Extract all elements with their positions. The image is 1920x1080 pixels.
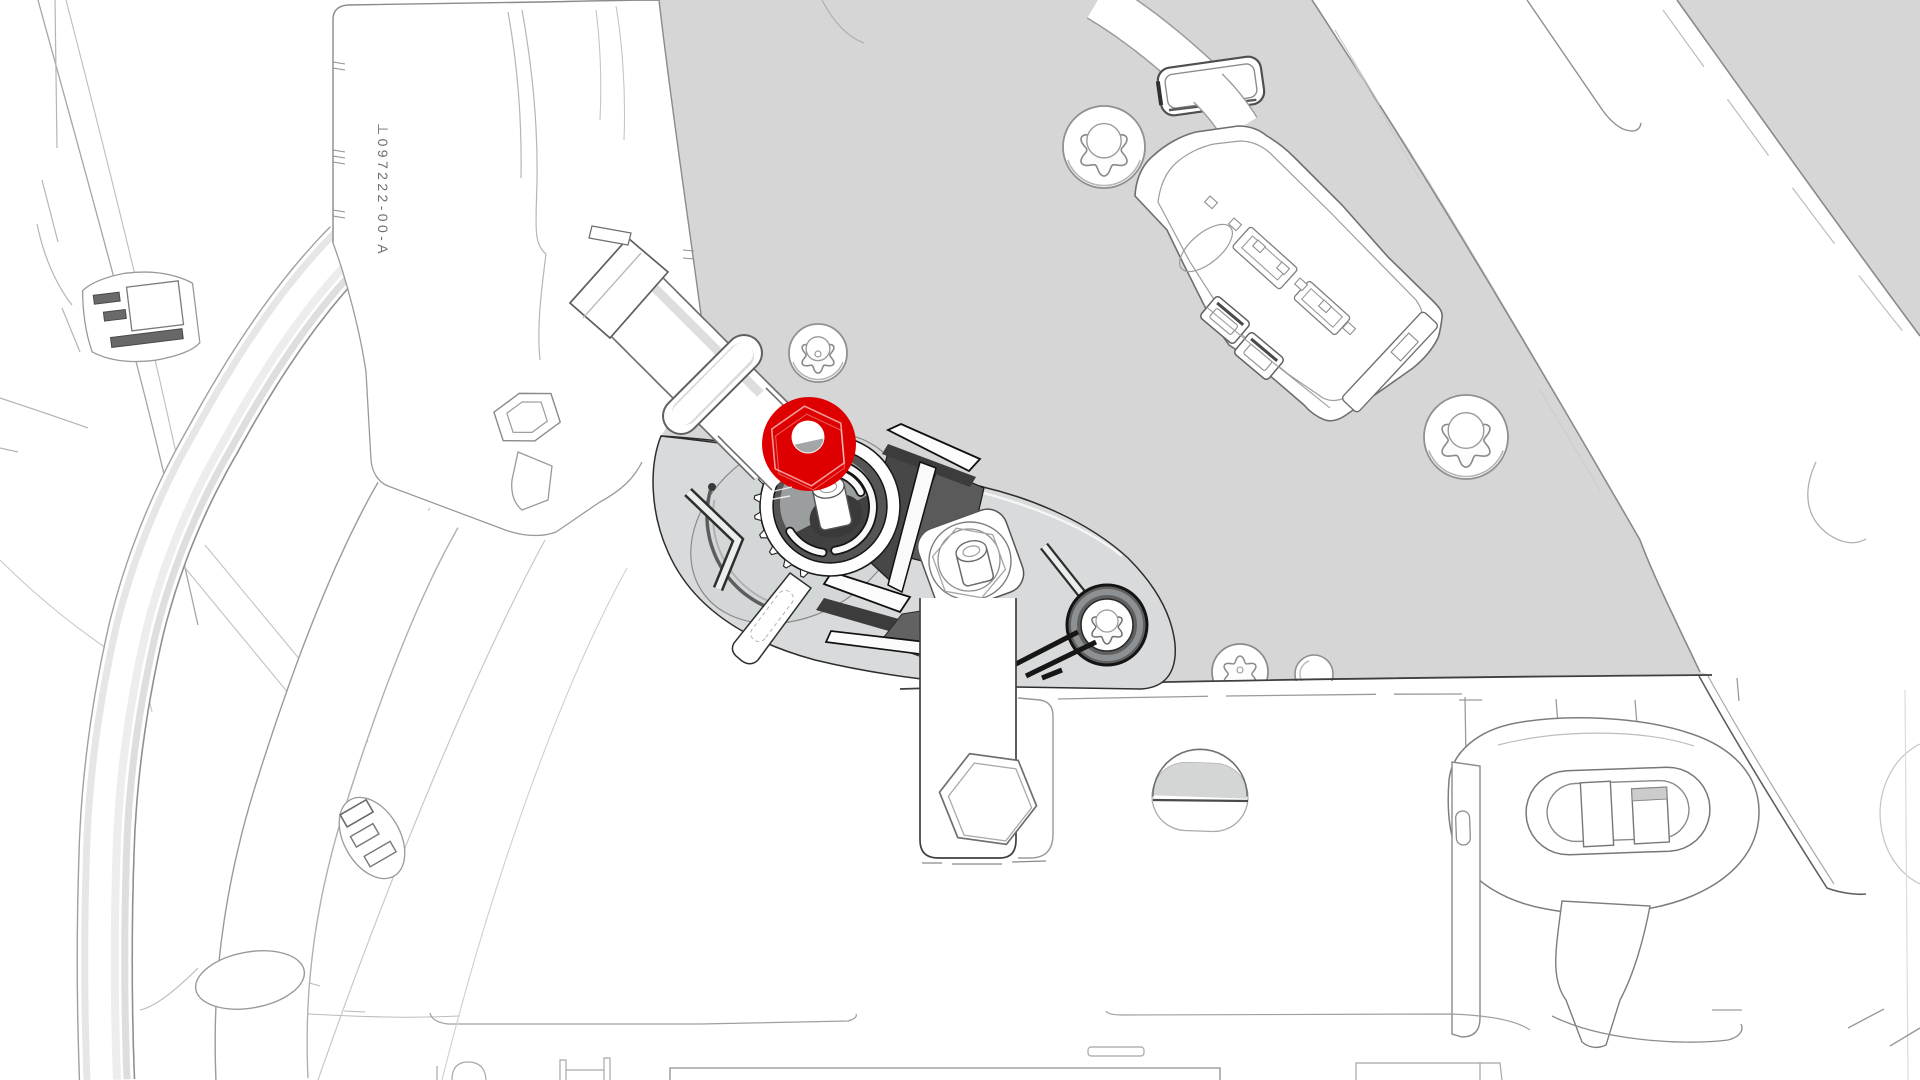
svg-text:⊥097222-00-A: ⊥097222-00-A xyxy=(375,123,391,257)
